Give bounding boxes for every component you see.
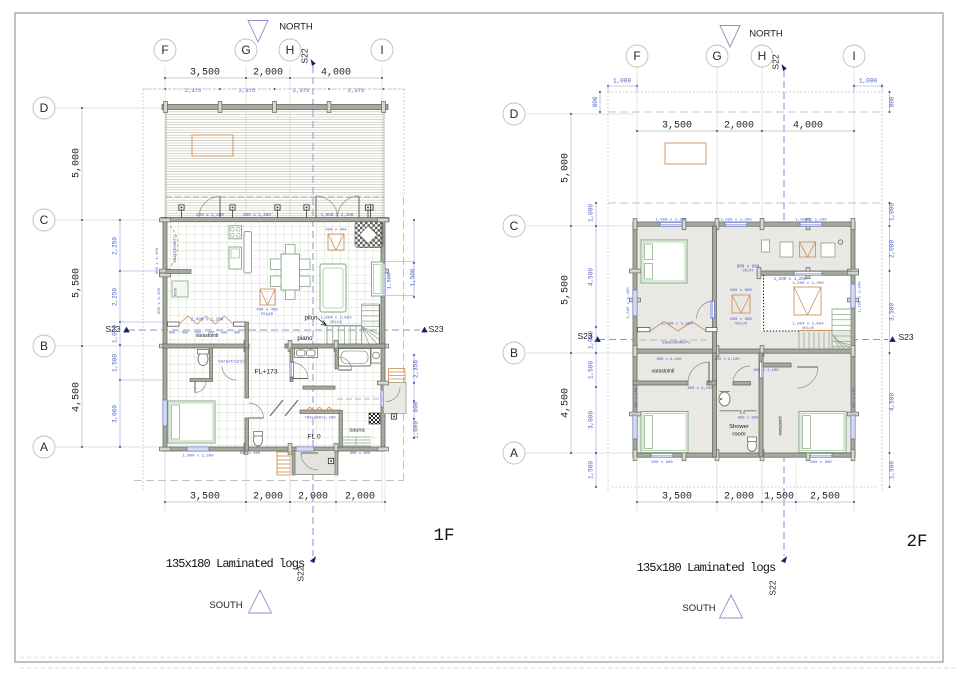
svg-text:S22: S22 xyxy=(771,54,781,69)
svg-text:2,375: 2,375 xyxy=(239,87,256,94)
svg-text:600 x 600: 600 x 600 xyxy=(730,289,752,293)
svg-text:900 x 1,200: 900 x 1,200 xyxy=(158,287,162,314)
svg-text:PELAR: PELAR xyxy=(261,313,274,317)
svg-text:800 x 2,100: 800 x 2,100 xyxy=(656,358,682,362)
svg-text:5,000: 5,000 xyxy=(72,148,83,178)
svg-text:1,500 x 1,400: 1,500 x 1,400 xyxy=(627,287,631,319)
svg-text:135x180 Laminated logs: 135x180 Laminated logs xyxy=(637,561,776,575)
svg-text:2,375: 2,375 xyxy=(348,87,365,94)
svg-text:1,500: 1,500 xyxy=(588,461,595,479)
svg-text:1,500: 1,500 xyxy=(588,361,595,379)
svg-text:F: F xyxy=(633,49,640,63)
svg-text:FL 0: FL 0 xyxy=(307,434,321,441)
svg-text:400 x 400: 400 x 400 xyxy=(256,309,278,313)
svg-text:D: D xyxy=(40,101,49,115)
svg-text:room: room xyxy=(732,432,745,438)
svg-text:400 x 400: 400 x 400 xyxy=(325,229,347,233)
svg-text:1,200 x 1,200: 1,200 x 1,200 xyxy=(859,281,863,313)
svg-text:5,500: 5,500 xyxy=(561,275,572,305)
svg-text:Shower: Shower xyxy=(729,424,749,430)
svg-text:1,500: 1,500 xyxy=(764,492,794,503)
svg-text:1,054 x 1,054: 1,054 x 1,054 xyxy=(792,323,824,327)
svg-text:1,000: 1,000 xyxy=(889,203,896,221)
svg-text:700+800x1,200: 700+800x1,200 xyxy=(304,417,336,421)
svg-text:3,500: 3,500 xyxy=(190,68,220,79)
svg-text:1,200 x 1,200: 1,200 x 1,200 xyxy=(774,278,807,282)
svg-text:1,000: 1,000 xyxy=(859,78,877,85)
svg-text:B: B xyxy=(40,339,48,353)
svg-text:1,000: 1,000 xyxy=(588,331,595,349)
svg-text:varastointi: varastointi xyxy=(778,416,783,435)
svg-text:800: 800 xyxy=(592,96,599,107)
svg-text:900 x 600: 900 x 600 xyxy=(635,387,639,408)
svg-text:800: 800 xyxy=(889,96,896,107)
svg-text:900 x 600: 900 x 600 xyxy=(350,452,371,456)
svg-text:F: F xyxy=(161,43,168,57)
svg-text:900 x 600: 900 x 600 xyxy=(240,452,261,456)
svg-text:600: 600 xyxy=(234,331,240,335)
svg-text:900 x 1,400: 900 x 1,400 xyxy=(156,247,160,274)
svg-text:1,500: 1,500 xyxy=(889,461,896,479)
svg-text:VELUX: VELUX xyxy=(743,270,755,274)
svg-text:2,000: 2,000 xyxy=(724,121,754,132)
svg-text:VELUX: VELUX xyxy=(330,321,343,325)
svg-text:A: A xyxy=(510,446,518,460)
svg-text:1,500: 1,500 xyxy=(386,273,393,290)
svg-text:H: H xyxy=(758,49,767,63)
svg-text:I: I xyxy=(852,49,855,63)
svg-text:1F: 1F xyxy=(433,526,454,546)
svg-text:G: G xyxy=(712,49,721,63)
svg-text:2,000: 2,000 xyxy=(253,492,283,503)
svg-text:1,800 x 1,200: 1,800 x 1,200 xyxy=(182,455,214,459)
svg-text:1,500: 1,500 xyxy=(112,354,119,372)
svg-text:2,490 x 1,200: 2,490 x 1,200 xyxy=(191,319,224,323)
svg-text:S23: S23 xyxy=(428,324,443,334)
svg-text:3,500: 3,500 xyxy=(190,492,220,503)
svg-text:S23: S23 xyxy=(898,332,913,342)
svg-text:3,500: 3,500 xyxy=(662,492,692,503)
svg-text:900 x 600: 900 x 600 xyxy=(651,461,673,465)
svg-text:vaatekomero: vaatekomero xyxy=(662,341,690,346)
svg-text:800 x 2,100: 800 x 2,100 xyxy=(687,387,713,391)
svg-text:VELUX: VELUX xyxy=(735,323,748,327)
svg-text:varastointi: varastointi xyxy=(218,360,246,365)
svg-text:1,600: 1,600 xyxy=(413,421,420,439)
svg-text:600: 600 xyxy=(195,331,201,335)
svg-text:4,500: 4,500 xyxy=(588,268,595,286)
svg-text:1,054 x 1,054: 1,054 x 1,054 xyxy=(320,317,352,321)
svg-text:2,356: 2,356 xyxy=(413,360,420,378)
svg-text:NORTH: NORTH xyxy=(749,29,783,40)
svg-text:varastointi: varastointi xyxy=(652,369,675,375)
svg-text:600: 600 xyxy=(413,401,420,412)
svg-text:pilun: pilun xyxy=(304,315,318,322)
svg-text:1,490 x 1,200: 1,490 x 1,200 xyxy=(661,323,693,327)
svg-text:5,000: 5,000 xyxy=(561,153,572,183)
svg-text:2,375: 2,375 xyxy=(293,87,310,94)
svg-text:4,500: 4,500 xyxy=(72,382,83,412)
svg-text:VELUX: VELUX xyxy=(802,327,815,331)
svg-text:I: I xyxy=(380,43,383,57)
svg-text:A: A xyxy=(40,440,48,454)
svg-text:1,050 x 1,200: 1,050 x 1,200 xyxy=(655,219,687,223)
svg-text:2,000: 2,000 xyxy=(298,492,328,503)
svg-text:600: 600 xyxy=(208,331,214,335)
svg-text:1,000: 1,000 xyxy=(588,204,595,222)
svg-text:800 x 800: 800 x 800 xyxy=(738,417,759,421)
svg-text:3,500: 3,500 xyxy=(662,121,692,132)
svg-text:piano: piano xyxy=(297,335,313,342)
svg-text:vaatekomero: vaatekomero xyxy=(173,235,178,263)
svg-text:PESU: PESU xyxy=(175,288,179,296)
svg-text:5,500: 5,500 xyxy=(72,268,83,298)
svg-text:1,000: 1,000 xyxy=(613,78,631,85)
svg-text:C: C xyxy=(510,219,519,233)
svg-text:800 x 2,100: 800 x 2,100 xyxy=(714,358,740,362)
svg-text:3,000: 3,000 xyxy=(588,411,595,429)
svg-text:900 x 600: 900 x 600 xyxy=(853,387,857,408)
svg-text:1,200 x 1,200: 1,200 x 1,200 xyxy=(792,282,824,286)
svg-text:2,000: 2,000 xyxy=(889,240,896,258)
svg-text:B: B xyxy=(510,346,518,360)
svg-text:600: 600 xyxy=(221,331,227,335)
svg-text:4,500: 4,500 xyxy=(889,393,896,411)
svg-text:3,000: 3,000 xyxy=(112,405,119,423)
svg-text:3,500: 3,500 xyxy=(889,303,896,321)
svg-text:C: C xyxy=(40,213,49,227)
svg-text:2,000: 2,000 xyxy=(253,68,283,79)
svg-text:2,250: 2,250 xyxy=(112,237,119,255)
svg-text:D: D xyxy=(510,107,519,121)
svg-text:FL+173: FL+173 xyxy=(254,369,277,376)
svg-text:1,500: 1,500 xyxy=(410,268,417,286)
svg-text:2F: 2F xyxy=(906,532,927,552)
svg-text:800 x 2,100: 800 x 2,100 xyxy=(753,369,779,373)
svg-text:600: 600 xyxy=(169,331,175,335)
svg-text:1,050 x 1,200: 1,050 x 1,200 xyxy=(720,219,752,223)
svg-text:2,375: 2,375 xyxy=(185,87,202,94)
svg-text:SOUTH: SOUTH xyxy=(209,600,242,611)
svg-text:135x180 Laminated logs: 135x180 Laminated logs xyxy=(166,557,305,571)
svg-text:4,000: 4,000 xyxy=(793,121,823,132)
svg-text:1,050 x 1,200: 1,050 x 1,200 xyxy=(795,219,827,223)
svg-text:2,500: 2,500 xyxy=(810,492,840,503)
svg-text:S22: S22 xyxy=(300,48,310,63)
svg-text:600 x 600: 600 x 600 xyxy=(730,318,752,322)
svg-text:H: H xyxy=(286,43,295,57)
svg-text:4,500: 4,500 xyxy=(561,388,572,418)
svg-text:S22: S22 xyxy=(768,580,778,595)
svg-text:1,000: 1,000 xyxy=(112,325,119,343)
svg-text:600: 600 xyxy=(182,331,188,335)
svg-text:4,000: 4,000 xyxy=(321,68,351,79)
svg-text:900 x 600: 900 x 600 xyxy=(810,461,832,465)
svg-text:600 x 1,400: 600 x 1,400 xyxy=(243,214,271,218)
svg-text:2,000: 2,000 xyxy=(345,492,375,503)
svg-text:SOUTH: SOUTH xyxy=(682,603,715,614)
svg-text:2,250: 2,250 xyxy=(112,288,119,306)
svg-text:NORTH: NORTH xyxy=(279,22,313,33)
svg-text:sauna: sauna xyxy=(349,428,365,434)
svg-text:2,000: 2,000 xyxy=(724,492,754,503)
svg-text:G: G xyxy=(241,43,250,57)
